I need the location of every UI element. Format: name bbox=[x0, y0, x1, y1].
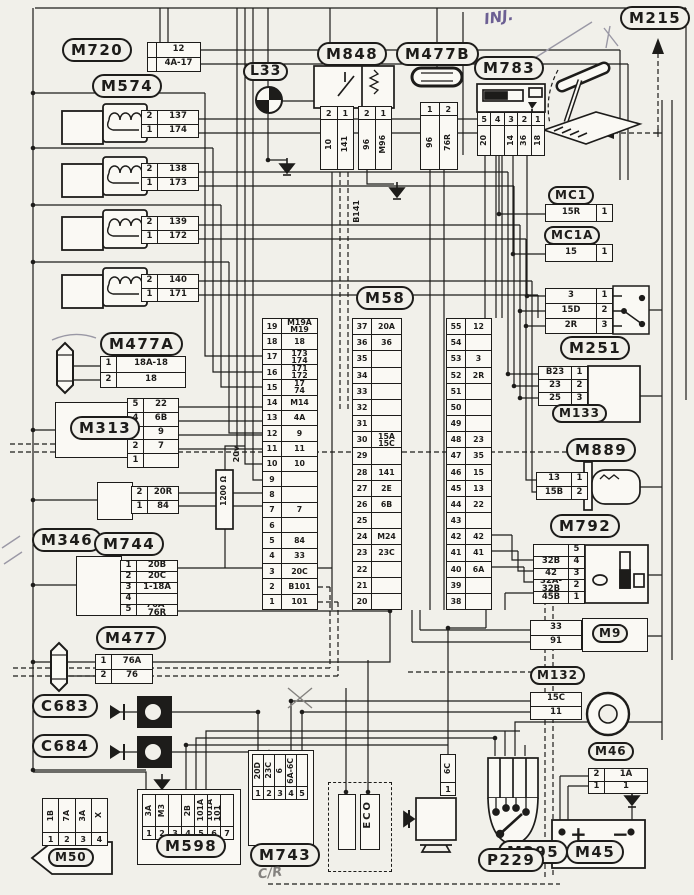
pin-row: 134A bbox=[263, 410, 317, 425]
vpin-table-m477b: 196276R bbox=[420, 102, 458, 170]
pin-cell bbox=[465, 335, 491, 350]
sensor-icon bbox=[584, 462, 640, 510]
pin-cell bbox=[465, 384, 491, 399]
pin-cell: 32B bbox=[534, 557, 568, 568]
pin-row: 24M24 bbox=[353, 528, 401, 544]
pin-cell: 15 bbox=[263, 380, 281, 394]
pin-cell: 173 174 bbox=[281, 350, 317, 364]
pin-cell: 35 bbox=[465, 448, 491, 463]
pin-table-m477a: 118A-18218 bbox=[100, 356, 186, 388]
pin-table-m744: 120B220C31-18A4576A-76R bbox=[120, 560, 178, 616]
vpin-table-m783: 5204314236118 bbox=[477, 112, 545, 156]
pin-row: 184 bbox=[132, 500, 178, 514]
pin-row: 32 bbox=[353, 399, 401, 415]
pin-number: 1 bbox=[143, 826, 155, 839]
pin-row: 1101 bbox=[263, 594, 317, 609]
pin-row: 32A-32B2 bbox=[534, 579, 584, 591]
pin-cell: 39 bbox=[447, 578, 465, 593]
pin-row: 2323C bbox=[353, 544, 401, 560]
pin-cell: 32A-32B bbox=[534, 580, 568, 591]
pin-row: 9 bbox=[263, 471, 317, 486]
pin-row: 1174 bbox=[142, 124, 198, 138]
pin-column: 27A bbox=[58, 799, 74, 845]
actuator-icon bbox=[404, 798, 456, 852]
pin-cell: 2 bbox=[571, 380, 587, 392]
wire-code: M3 bbox=[156, 795, 168, 826]
pin-cell bbox=[371, 351, 401, 366]
pin-row: 220R bbox=[132, 487, 178, 500]
pin-cell: 9 bbox=[143, 427, 178, 440]
component-label-m58: M58 bbox=[356, 286, 414, 310]
pin-cell: 2 bbox=[96, 670, 111, 684]
pin-cell: 20R bbox=[147, 487, 178, 500]
pin-row: 533 bbox=[447, 350, 491, 366]
pin-table-m477: 176A276 bbox=[95, 654, 153, 684]
pin-number: 3 bbox=[76, 832, 91, 845]
pin-cell: 20A bbox=[371, 319, 401, 334]
pin-row: 2138 bbox=[142, 164, 198, 177]
pin-cell: 11 bbox=[263, 442, 281, 456]
pin-column: 33A bbox=[75, 799, 91, 845]
pin-column: 36 bbox=[274, 755, 285, 799]
wire-code: 23C bbox=[264, 755, 274, 786]
pin-number: 1 bbox=[441, 782, 455, 795]
pin-cell: 76 bbox=[111, 670, 152, 684]
eco-element-box bbox=[338, 794, 356, 850]
pin-table-mc1a: 151 bbox=[545, 244, 613, 262]
pin-cell: M14 bbox=[281, 396, 317, 410]
pin-cell: 45 bbox=[447, 481, 465, 496]
pin-number: 2 bbox=[321, 107, 337, 120]
pin-cell: 84 bbox=[147, 501, 178, 514]
pin-cell: 12 bbox=[465, 319, 491, 334]
wire-code: 20D bbox=[253, 755, 263, 786]
pin-cell: 9 bbox=[281, 426, 317, 440]
pin-row: 4141 bbox=[447, 544, 491, 560]
pin-cell: 18A-18 bbox=[116, 357, 185, 372]
pin-row: 576A-76R bbox=[121, 604, 177, 615]
pin-cell: 50 bbox=[447, 400, 465, 415]
pin-cell bbox=[465, 400, 491, 415]
component-label-m50: M50 bbox=[48, 848, 94, 867]
pin-row: 15R1 bbox=[546, 205, 612, 221]
module-box-m346 bbox=[97, 482, 133, 520]
pin-cell: 1 bbox=[596, 245, 612, 261]
pin-table-m133: B231232253 bbox=[538, 366, 588, 406]
pin-row: 4735 bbox=[447, 447, 491, 463]
pin-cell: 16 bbox=[263, 365, 281, 379]
pin-cell: 33 bbox=[353, 384, 371, 399]
pin-cell: 49 bbox=[447, 416, 465, 431]
component-label-mc1a: MC1A bbox=[544, 226, 600, 245]
component-label-m132: M132 bbox=[530, 666, 585, 685]
pin-row: 25 bbox=[353, 512, 401, 528]
component-label-m574: M574 bbox=[92, 74, 162, 98]
vpin-table-m295: 16C bbox=[440, 754, 456, 796]
pin-cell: 2 bbox=[142, 217, 157, 230]
pin-cell bbox=[465, 416, 491, 431]
pin-cell: 1 bbox=[142, 125, 157, 138]
pin-cell: 5 bbox=[568, 545, 584, 556]
pin-cell: 22 bbox=[143, 399, 178, 412]
pin-cell bbox=[371, 400, 401, 415]
pin-number: 2 bbox=[359, 107, 375, 120]
pin-cell: 2 bbox=[571, 487, 587, 500]
pin-cell: 15R bbox=[546, 205, 596, 221]
vpin-table-m848-a: 2101141 bbox=[320, 106, 354, 170]
pin-row: 4A-17 bbox=[148, 57, 200, 72]
pin-table-mc1: 15R1 bbox=[545, 204, 613, 222]
pin-row: 22 bbox=[353, 561, 401, 577]
ecu-column-2: 3720A363635343332313015A 15C2928141272E2… bbox=[352, 318, 402, 610]
pin-row: 2R3 bbox=[546, 318, 612, 333]
pin-cell: M19A M19 bbox=[281, 319, 317, 333]
pin-cell: 33 bbox=[531, 621, 581, 635]
pin-column: 13A bbox=[143, 795, 155, 839]
pin-cell: 2E bbox=[371, 481, 401, 496]
pin-cell: 1A bbox=[604, 769, 647, 781]
pin-cell: 3 bbox=[121, 583, 136, 593]
pin-cell: 20C bbox=[136, 572, 177, 582]
pin-table-m792: 532B442332A-32B245B1 bbox=[533, 544, 585, 604]
component-label-m251: M251 bbox=[560, 336, 630, 360]
pin-row: 120B bbox=[121, 561, 177, 571]
pin-column: 120D bbox=[253, 755, 263, 799]
pin-cell: 46 bbox=[447, 465, 465, 480]
pin-row: 32B4 bbox=[534, 556, 584, 568]
pin-cell: 138 bbox=[157, 164, 198, 177]
pin-column: 314 bbox=[504, 113, 517, 155]
component-label-m720: M720 bbox=[62, 38, 132, 62]
pin-cell: 6A bbox=[465, 562, 491, 577]
pin-cell: 33 bbox=[281, 549, 317, 563]
pin-row: 406A bbox=[447, 561, 491, 577]
pin-cell: 27 bbox=[353, 481, 371, 496]
pin-cell: 18 bbox=[116, 373, 185, 388]
pin-cell bbox=[465, 513, 491, 528]
pin-cell bbox=[136, 594, 177, 604]
pin-cell: 101 bbox=[281, 595, 317, 609]
pin-column: 296 bbox=[359, 107, 375, 169]
pin-cell: 23C bbox=[371, 545, 401, 560]
pin-cell: 2 bbox=[596, 304, 612, 318]
pin-cell: 42 bbox=[465, 529, 491, 544]
pin-cell: 1 bbox=[142, 289, 157, 302]
wire-code: 96 bbox=[359, 120, 375, 169]
pin-cell: 55 bbox=[447, 319, 465, 334]
pin-cell: 22 bbox=[353, 562, 371, 577]
pin-table-injector2: 21381173 bbox=[141, 163, 199, 191]
pin-row: 320C bbox=[263, 563, 317, 578]
pin-table-m132: 15C11 bbox=[530, 692, 582, 720]
pin-cell: 18 bbox=[281, 334, 317, 348]
pin-cell: 36 bbox=[371, 335, 401, 350]
pin-cell: 21 bbox=[353, 578, 371, 593]
pin-row: 1 bbox=[128, 453, 178, 467]
pin-cell: 14 bbox=[263, 396, 281, 410]
pin-row: 1010 bbox=[263, 456, 317, 471]
wire-code bbox=[491, 126, 503, 155]
pin-cell: 2 bbox=[568, 580, 584, 591]
pin-cell: 4A bbox=[281, 411, 317, 425]
pin-cell: 2 bbox=[101, 373, 116, 388]
pin-cell: 54 bbox=[447, 335, 465, 350]
pin-row: 38 bbox=[447, 593, 491, 609]
pin-cell: 3 bbox=[263, 564, 281, 578]
pin-cell: 20C bbox=[281, 564, 317, 578]
pin-row: 31 bbox=[353, 415, 401, 431]
pin-cell: 15A 15C bbox=[371, 432, 401, 447]
pin-cell: 32 bbox=[353, 400, 371, 415]
pin-cell: 24 bbox=[353, 529, 371, 544]
pin-cell bbox=[371, 513, 401, 528]
pin-cell: 35 bbox=[353, 351, 371, 366]
pin-row: 27 bbox=[128, 439, 178, 453]
pin-row: 2140 bbox=[142, 275, 198, 288]
wire-code: 1B bbox=[43, 799, 58, 832]
pin-cell: 1 bbox=[101, 357, 116, 372]
pin-cell: 15C bbox=[531, 693, 581, 706]
pin-row: 19M19A M19 bbox=[263, 319, 317, 333]
pin-row: 28141 bbox=[353, 464, 401, 480]
wire-code: M96 bbox=[376, 120, 392, 169]
pin-cell: 1 bbox=[571, 367, 587, 379]
pin-cell: 13 bbox=[263, 411, 281, 425]
pin-cell: 139 bbox=[157, 217, 198, 230]
pin-cell: 2 bbox=[142, 164, 157, 177]
component-label-m598: M598 bbox=[156, 834, 226, 858]
ecu-column-1: 19M19A M19181817173 17416171 1721517 741… bbox=[262, 318, 318, 610]
pin-cell: 15D bbox=[546, 304, 596, 318]
wire-code: 6C bbox=[441, 755, 455, 782]
pin-table-m46: 21A11 bbox=[588, 768, 648, 794]
pin-row: 4823 bbox=[447, 431, 491, 447]
pin-cell: 34 bbox=[353, 368, 371, 383]
switch-icon bbox=[613, 286, 649, 334]
pin-cell: M24 bbox=[371, 529, 401, 544]
pin-table-injector4: 21401171 bbox=[141, 274, 199, 302]
pin-row: 6 bbox=[263, 517, 317, 532]
pin-column: 236 bbox=[517, 113, 530, 155]
component-label-m477b: M477B bbox=[396, 42, 479, 66]
pin-row: 3636 bbox=[353, 334, 401, 350]
pin-table-m251: 3115D22R3 bbox=[545, 288, 613, 334]
pin-cell: 42 bbox=[534, 569, 568, 580]
pin-cell: 91 bbox=[531, 636, 581, 650]
wire-code: 3A bbox=[76, 799, 91, 832]
pin-column: 11B bbox=[43, 799, 58, 845]
pin-cell: 18 bbox=[263, 334, 281, 348]
pin-row: 33 bbox=[531, 621, 581, 635]
pin-column: 2M3 bbox=[155, 795, 168, 839]
pin-table-injector1: 21371174 bbox=[141, 110, 199, 138]
pin-cell: 84 bbox=[281, 533, 317, 547]
pin-cell: 2 bbox=[132, 487, 147, 500]
pin-cell bbox=[371, 562, 401, 577]
pin-row: 4615 bbox=[447, 464, 491, 480]
resistor-value-label: 1200 Ω bbox=[219, 476, 228, 506]
pin-cell: 42 bbox=[447, 529, 465, 544]
pin-cell: 7 bbox=[281, 503, 317, 517]
pin-row: 4513 bbox=[447, 480, 491, 496]
pin-cell: 4 bbox=[263, 549, 281, 563]
pin-row: 151 bbox=[546, 245, 612, 261]
pin-cell: 53 bbox=[447, 351, 465, 366]
pin-row: 49 bbox=[447, 415, 491, 431]
pin-cell: 7 bbox=[143, 440, 178, 453]
relay-icon bbox=[314, 66, 394, 108]
pin-row: 45B1 bbox=[534, 591, 584, 603]
pin-row: 8 bbox=[263, 486, 317, 501]
component-label-m477: M477 bbox=[96, 626, 166, 650]
pin-row: 15B2 bbox=[537, 486, 587, 500]
pin-cell: 1 bbox=[263, 595, 281, 609]
pin-cell: 171 bbox=[157, 289, 198, 302]
wire-code: 141 bbox=[338, 120, 354, 169]
wire-code: 18 bbox=[532, 126, 544, 155]
pin-row: 1111 bbox=[263, 441, 317, 456]
pin-row: 584 bbox=[263, 532, 317, 547]
pin-cell: B23 bbox=[539, 367, 571, 379]
pin-number: 4 bbox=[286, 786, 296, 799]
pin-number: 2 bbox=[518, 113, 530, 126]
component-label-l33: L33 bbox=[243, 62, 288, 81]
pin-row: 16171 172 bbox=[263, 364, 317, 379]
pin-cell: 172 bbox=[157, 231, 198, 244]
module-box-m744 bbox=[76, 556, 122, 616]
pin-number: 2 bbox=[440, 103, 458, 116]
wire-code: 7A bbox=[59, 799, 74, 832]
pin-table-m889: 13115B2 bbox=[536, 472, 588, 500]
wire-code bbox=[297, 755, 307, 786]
pin-row: 433 bbox=[263, 548, 317, 563]
pin-row: 1171 bbox=[142, 288, 198, 302]
pin-cell: 2 bbox=[128, 440, 143, 453]
pin-cell: 26 bbox=[353, 497, 371, 512]
pin-row: 15D2 bbox=[546, 303, 612, 318]
pin-column: 5101A bbox=[194, 795, 207, 839]
pin-column: 1141 bbox=[337, 107, 354, 169]
pin-row: 129 bbox=[263, 425, 317, 440]
pin-cell: 171 172 bbox=[281, 365, 317, 379]
pin-cell bbox=[465, 594, 491, 609]
pin-row: 4242 bbox=[447, 528, 491, 544]
pin-cell: 1 bbox=[142, 231, 157, 244]
pin-cell: 6 bbox=[263, 518, 281, 532]
pin-cell: 4 bbox=[121, 594, 136, 604]
pin-cell: 1 bbox=[571, 473, 587, 486]
pin-row: 3015A 15C bbox=[353, 431, 401, 447]
pin-cell bbox=[371, 578, 401, 593]
pin-number: 5 bbox=[478, 113, 490, 126]
pin-cell bbox=[371, 384, 401, 399]
pin-table-m346: 220R184 bbox=[131, 486, 179, 514]
vpin-table-m50: 11B27A33A4X bbox=[42, 798, 108, 846]
pin-cell: 1 bbox=[596, 205, 612, 221]
pin-row: 276 bbox=[96, 669, 152, 684]
component-label-m792: M792 bbox=[550, 514, 620, 538]
pin-cell: 5 bbox=[121, 605, 136, 615]
pin-row: 118A-18 bbox=[101, 357, 185, 372]
pin-number: 2 bbox=[59, 832, 74, 845]
pin-cell bbox=[148, 58, 156, 72]
pin-column: 42B bbox=[181, 795, 194, 839]
pin-row: 4 bbox=[121, 593, 177, 604]
pin-row: 51 bbox=[447, 383, 491, 399]
wire-code: X bbox=[92, 799, 107, 832]
pin-row: 12 bbox=[148, 43, 200, 57]
pin-cell: 1-18A bbox=[136, 583, 177, 593]
pin-cell: 10 bbox=[263, 457, 281, 471]
wire-code: 96 bbox=[421, 116, 439, 169]
wire-code: 6 bbox=[275, 755, 285, 786]
pin-column: 4X bbox=[91, 799, 107, 845]
pin-cell bbox=[534, 545, 568, 556]
pin-cell: 29 bbox=[353, 448, 371, 463]
pin-row: 1172 bbox=[142, 230, 198, 244]
component-label-c684: C684 bbox=[32, 734, 98, 758]
pin-cell bbox=[148, 43, 156, 57]
component-label-m848: M848 bbox=[317, 42, 387, 66]
pin-row: 31 bbox=[546, 289, 612, 303]
pin-cell: 11 bbox=[531, 707, 581, 720]
pin-cell: 37 bbox=[353, 319, 371, 334]
pin-cell: 20B bbox=[136, 561, 177, 571]
pin-cell: 2 bbox=[142, 111, 157, 124]
pin-cell: 2 bbox=[121, 572, 136, 582]
pin-cell: 1 bbox=[142, 178, 157, 191]
pin-cell: 1 bbox=[596, 289, 612, 303]
pin-column: 210 bbox=[321, 107, 337, 169]
pin-row: 1173 bbox=[142, 177, 198, 191]
ring-terminal-icon bbox=[587, 693, 629, 735]
pin-row: 5 bbox=[534, 545, 584, 556]
wire-code: 10 bbox=[321, 120, 337, 169]
pin-row: 20 bbox=[353, 593, 401, 609]
pin-cell: 17 bbox=[263, 350, 281, 364]
wire-code: 36 bbox=[518, 126, 530, 155]
pin-row: 272E bbox=[353, 480, 401, 496]
pin-cell: 173 bbox=[157, 178, 198, 191]
wire-code: 14 bbox=[505, 126, 517, 155]
handwritten-cr-note: C/R bbox=[257, 865, 283, 883]
pin-cell bbox=[281, 487, 317, 501]
voltage-label: 20v bbox=[232, 446, 241, 462]
pin-cell: 40 bbox=[447, 562, 465, 577]
pin-number: 5 bbox=[297, 786, 307, 799]
pin-cell: 1 bbox=[121, 561, 136, 571]
pin-row: 43 bbox=[447, 512, 491, 528]
pin-cell: 22 bbox=[465, 497, 491, 512]
pin-row: 11 bbox=[589, 781, 647, 794]
lamp-icon bbox=[256, 87, 282, 113]
pin-row: 3720A bbox=[353, 319, 401, 334]
pin-cell: 5 bbox=[128, 399, 143, 412]
pin-cell bbox=[371, 594, 401, 609]
eco-label: ECO bbox=[362, 800, 373, 829]
pin-row: 220C bbox=[121, 571, 177, 582]
pin-cell: 1 bbox=[568, 592, 584, 603]
pin-row: 33 bbox=[353, 383, 401, 399]
pin-number: 4 bbox=[92, 832, 107, 845]
component-label-m313: M313 bbox=[70, 416, 140, 440]
distributor-icon bbox=[488, 758, 538, 845]
pin-cell: 6B bbox=[143, 413, 178, 426]
pin-number: 3 bbox=[275, 786, 285, 799]
component-label-m133: M133 bbox=[552, 404, 607, 423]
wire-code: 20 bbox=[478, 126, 490, 155]
pin-cell: 45B bbox=[534, 592, 568, 603]
